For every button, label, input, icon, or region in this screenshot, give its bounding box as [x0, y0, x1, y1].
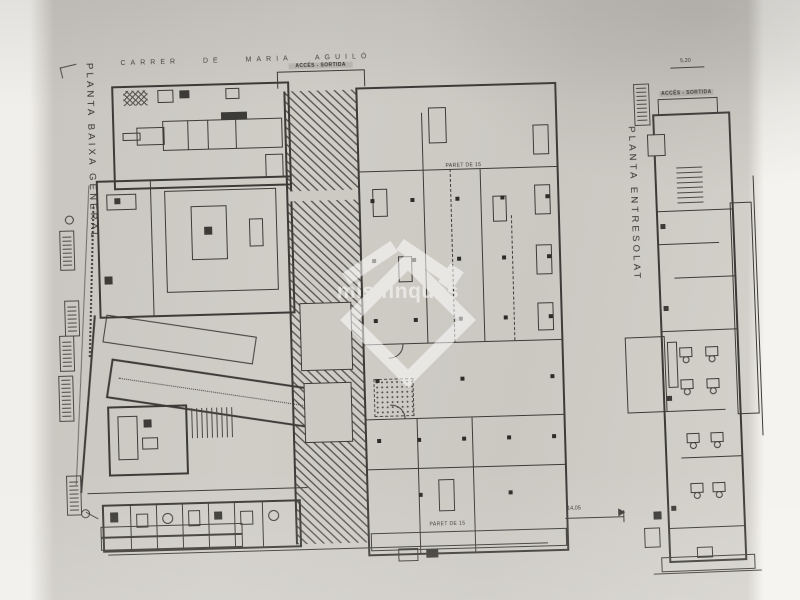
street-furniture [398, 548, 418, 562]
column-dot [374, 319, 378, 323]
furniture-box [249, 218, 264, 246]
column-dot [509, 490, 513, 494]
street-sign-box [59, 230, 75, 270]
furniture-dot [114, 198, 120, 204]
fixture [110, 512, 118, 522]
street-sign-box [58, 376, 74, 422]
street-sign-box [633, 83, 651, 126]
machine-divider [187, 121, 189, 149]
column-dot [545, 194, 549, 198]
column-dot [370, 199, 374, 203]
fixture-box [265, 154, 284, 178]
bottom-prop [653, 511, 661, 519]
fixture [214, 511, 222, 519]
machine-body [162, 118, 283, 151]
column-dot [504, 315, 508, 319]
column-dot [507, 435, 511, 439]
table [191, 205, 228, 260]
desk-symbol [680, 379, 693, 389]
title-corner-mark [60, 64, 79, 79]
column-dot [419, 493, 423, 497]
band-room-cutout [304, 382, 354, 443]
street-furniture [426, 549, 438, 557]
wall-segment [150, 181, 155, 315]
column-dot [410, 198, 414, 202]
column-dot [457, 257, 461, 261]
column-dot [459, 317, 463, 321]
outer-wall-bottom [87, 487, 307, 494]
column-dot [412, 258, 416, 262]
band-opening [288, 190, 358, 202]
furniture-dot [104, 276, 112, 284]
column-dot [372, 259, 376, 263]
column-dot [547, 254, 551, 258]
photo-left-light-band [0, 0, 54, 600]
stairs [191, 407, 234, 438]
ground-floor-plan: PLANTA BAIXA GENERAL CARRER DE MARIA AGU… [62, 44, 581, 573]
desk-symbol [706, 378, 719, 388]
band-room-cutout [299, 302, 353, 371]
column-dot [414, 318, 418, 322]
access-label-mezzanine: ACCÉS - SORTIDA [659, 89, 713, 97]
furniture-box [106, 194, 136, 211]
lower-left-wing [77, 309, 300, 507]
machine-divider [207, 121, 209, 149]
furniture-box [142, 437, 158, 449]
mezzanine-title: PLANTA ENTRESOLAT [626, 126, 643, 282]
desk-symbol [710, 432, 723, 442]
access-bracket [277, 69, 365, 88]
desk-symbol [690, 483, 703, 493]
left-mid-rooms [96, 175, 296, 318]
furniture-dot [143, 419, 151, 427]
machine-rod [122, 133, 140, 141]
table-item [204, 227, 212, 235]
fixture-box [225, 88, 239, 99]
diagonal-room [102, 315, 256, 365]
furniture-box [117, 416, 138, 461]
desk-symbol [712, 482, 725, 492]
fixture-round [162, 513, 173, 524]
column-dot [417, 438, 421, 442]
corridor-dashed-line [119, 378, 307, 407]
access-label-top: ACCÉS - SORTIDA [289, 62, 353, 70]
small-room [107, 404, 189, 476]
desk-symbol [679, 347, 692, 357]
street-sign-box [64, 300, 80, 336]
machine-head [221, 112, 247, 120]
desk-symbol [686, 433, 699, 443]
column-grid [357, 84, 567, 554]
dimension-line [670, 66, 704, 68]
dimension-label: 14,05 [567, 505, 581, 511]
street-sign-box [66, 475, 82, 515]
desk-symbol [705, 346, 718, 356]
stall-divider [262, 502, 264, 546]
desk-layer [654, 113, 745, 561]
scanned-floorplan-photo: PLANTA BAIXA GENERAL CARRER DE MARIA AGU… [0, 0, 800, 600]
bottom-prop [644, 527, 661, 548]
machine-divider [235, 120, 237, 148]
column-dot [552, 434, 556, 438]
column-dot [502, 255, 506, 259]
fixture-round [268, 510, 279, 521]
column-dot [549, 314, 553, 318]
column-dot [455, 197, 459, 201]
machine-room [111, 81, 292, 190]
fixture-box [157, 90, 173, 103]
fixture-box [179, 90, 189, 98]
mezzanine-plan: PLANTA ENTRESOLAT 5,20 ACCÉS - SORTIDA [612, 55, 782, 575]
column-dot [375, 379, 379, 383]
left-annex [625, 336, 668, 413]
column-dot [500, 195, 504, 199]
column-dot [460, 377, 464, 381]
mezzanine-strip [652, 111, 747, 563]
dimension-label: 5,20 [680, 58, 691, 64]
survey-marker-icon [65, 215, 74, 224]
column-dot [377, 439, 381, 443]
column-dot [462, 437, 466, 441]
column-dot [550, 374, 554, 378]
extension-line [565, 516, 623, 519]
crosshatch-patch [123, 90, 147, 106]
street-sign-box [59, 336, 75, 372]
main-hall: PARET DE 15 PARET DE 15 [355, 82, 569, 556]
